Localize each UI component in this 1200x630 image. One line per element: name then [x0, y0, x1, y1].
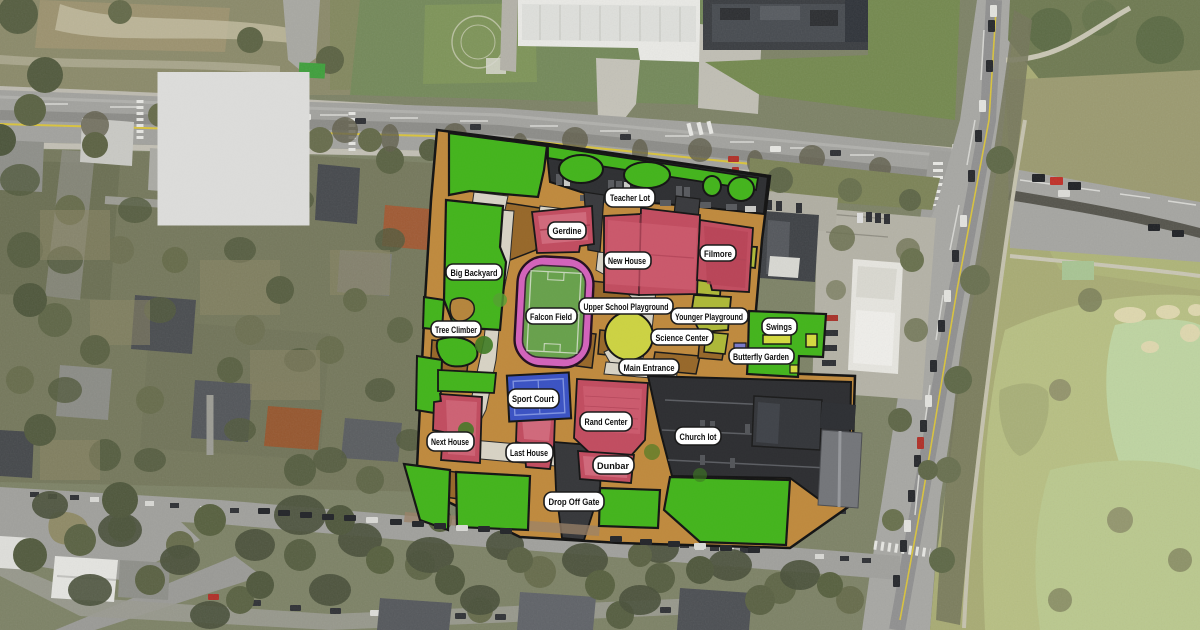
svg-text:Younger Playground: Younger Playground	[675, 312, 743, 322]
svg-text:Big Backyard: Big Backyard	[451, 268, 498, 278]
svg-text:Main Entrance: Main Entrance	[624, 363, 675, 373]
svg-text:New House: New House	[608, 256, 646, 266]
svg-text:Teacher Lot: Teacher Lot	[610, 193, 650, 203]
svg-text:Filmore: Filmore	[704, 249, 732, 259]
svg-text:Last House: Last House	[510, 448, 548, 458]
svg-text:Tree Climber: Tree Climber	[435, 325, 477, 335]
svg-text:Falcon Field: Falcon Field	[530, 312, 572, 322]
svg-text:Church lot: Church lot	[680, 432, 717, 442]
svg-text:Upper School Playground: Upper School Playground	[584, 302, 669, 312]
svg-text:Gerdine: Gerdine	[553, 226, 582, 236]
svg-text:Dunbar: Dunbar	[597, 461, 630, 471]
svg-text:Drop Off Gate: Drop Off Gate	[549, 497, 600, 507]
svg-text:Swings: Swings	[766, 322, 792, 332]
svg-text:Butterfly Garden: Butterfly Garden	[733, 352, 789, 362]
svg-text:Next House: Next House	[431, 437, 469, 447]
svg-text:Science Center: Science Center	[656, 333, 709, 343]
svg-text:Rand Center: Rand Center	[585, 417, 628, 427]
svg-text:Sport Court: Sport Court	[512, 394, 554, 404]
